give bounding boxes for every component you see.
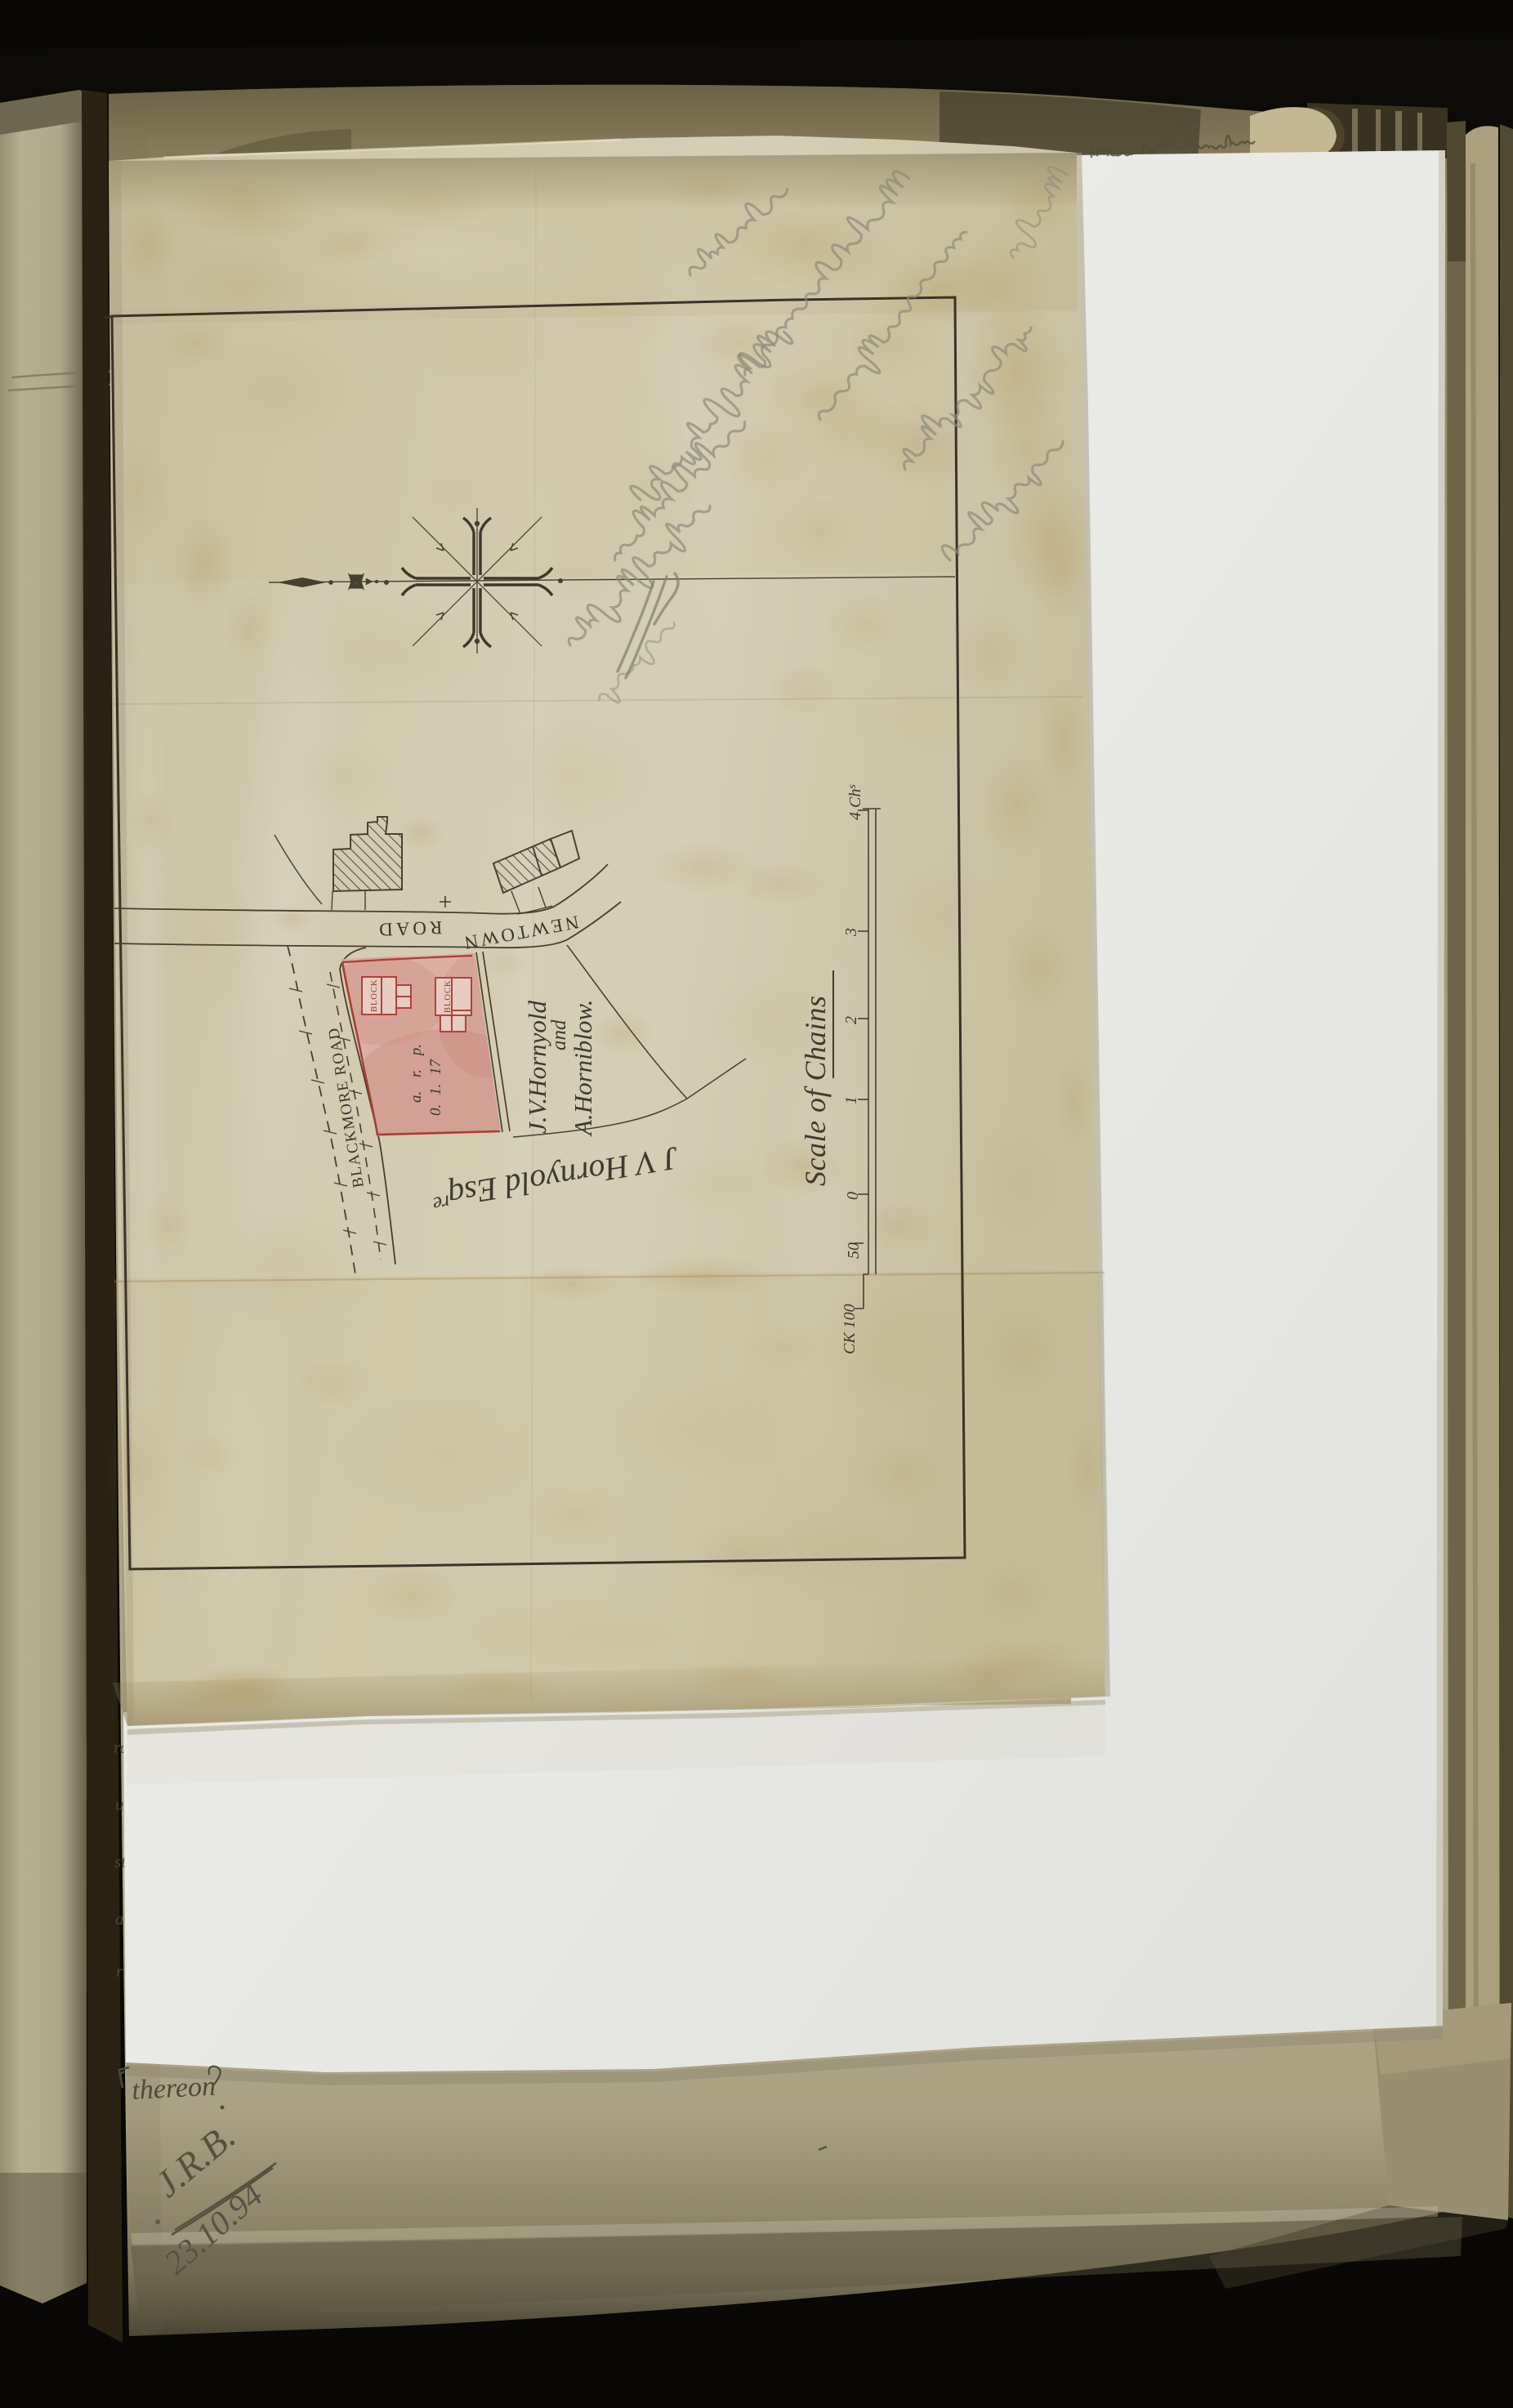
svg-text:1: 1 [842, 1096, 860, 1104]
svg-text:50: 50 [845, 1242, 863, 1259]
svg-text:BLOCK: BLOCK [370, 979, 379, 1012]
svg-text:ROAD: ROAD [376, 917, 443, 940]
svg-text:3: 3 [842, 928, 860, 937]
svg-text:a. r. p.: a. r. p. [408, 1044, 425, 1103]
svg-text:r: r [116, 1961, 123, 1981]
svg-text:thereon: thereon [131, 2071, 216, 2106]
svg-text:0. 1. 17: 0. 1. 17 [427, 1059, 444, 1117]
svg-text:Scale of Chains: Scale of Chains [799, 996, 832, 1186]
svg-text:BLOCK: BLOCK [444, 979, 453, 1013]
svg-text:J.V.Hornyold: J.V.Hornyold [523, 1000, 551, 1134]
svg-text:0: 0 [844, 1192, 862, 1200]
svg-text:a: a [115, 1909, 124, 1929]
svg-text:4 Chs: 4 Chs [846, 784, 864, 820]
svg-text:CK 100: CK 100 [841, 1304, 859, 1354]
svg-text:2: 2 [842, 1016, 860, 1024]
svg-text:and: and [548, 1019, 570, 1050]
svg-text:A.Horniblow.: A.Horniblow. [569, 1000, 597, 1138]
